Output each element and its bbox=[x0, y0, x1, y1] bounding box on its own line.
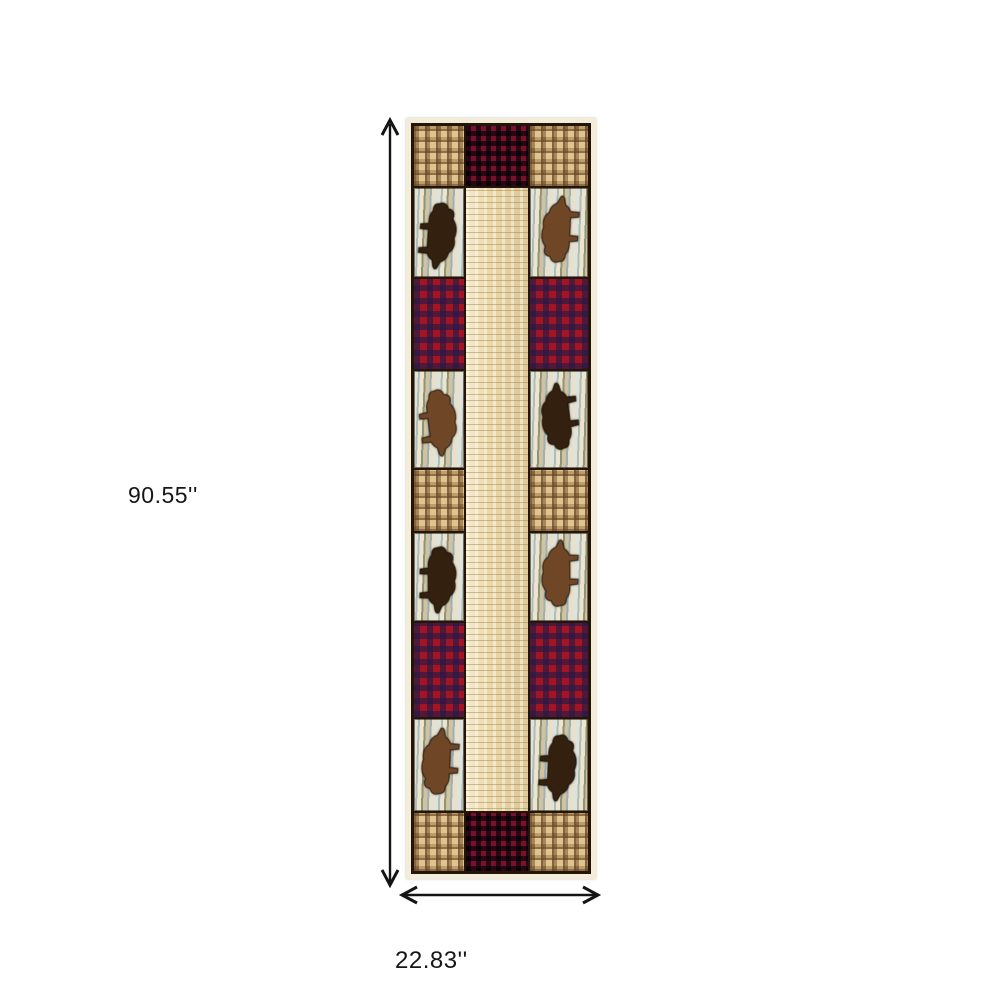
rug-cell-bear-motif-left bbox=[414, 371, 464, 468]
rug-cell-red-plaid bbox=[414, 279, 464, 369]
rug-cell-tan-plaid bbox=[414, 126, 464, 186]
bear-icon bbox=[533, 535, 585, 619]
rug-cell-bear-motif-left bbox=[414, 533, 464, 621]
rug-cell-tan-plaid bbox=[530, 470, 588, 531]
bear-icon bbox=[414, 535, 464, 619]
bear-icon bbox=[414, 722, 464, 808]
bear-icon bbox=[414, 189, 464, 276]
rug-cell-red-plaid bbox=[530, 279, 588, 369]
rug-image bbox=[406, 118, 596, 879]
rug-patchwork bbox=[411, 123, 591, 874]
bear-icon bbox=[531, 190, 587, 276]
rug-cell-bear-motif-right bbox=[530, 533, 588, 621]
bear-icon bbox=[531, 722, 587, 808]
rug-cell-tan-plaid bbox=[414, 813, 464, 871]
rug-cell-tan-plaid bbox=[414, 470, 464, 531]
rug-cell-red-check bbox=[466, 126, 528, 186]
height-dimension-label: 90.55'' bbox=[128, 482, 198, 509]
rug-cell-tan-plaid bbox=[530, 126, 588, 186]
rug-cell-bear-motif-left bbox=[414, 188, 464, 277]
rug-cell-red-plaid bbox=[414, 623, 464, 717]
rug-cell-bear-motif-right bbox=[530, 719, 588, 811]
width-dimension-label: 22.83'' bbox=[395, 947, 468, 975]
product-dimension-diagram: 90.55'' 22.83'' bbox=[0, 0, 1000, 1000]
bear-icon bbox=[414, 377, 464, 463]
rug-cell-red-check bbox=[466, 813, 528, 871]
rug-cell-bear-motif-left bbox=[414, 719, 464, 811]
rug-center-stripe bbox=[466, 188, 528, 811]
bear-icon bbox=[531, 377, 587, 463]
height-dimension-arrow bbox=[379, 114, 401, 890]
rug-cell-tan-plaid bbox=[530, 813, 588, 871]
width-dimension-arrow bbox=[396, 884, 604, 906]
rug-cell-red-plaid bbox=[530, 623, 588, 717]
rug-cell-bear-motif-right bbox=[530, 188, 588, 277]
rug-cell-bear-motif-right bbox=[530, 371, 588, 468]
